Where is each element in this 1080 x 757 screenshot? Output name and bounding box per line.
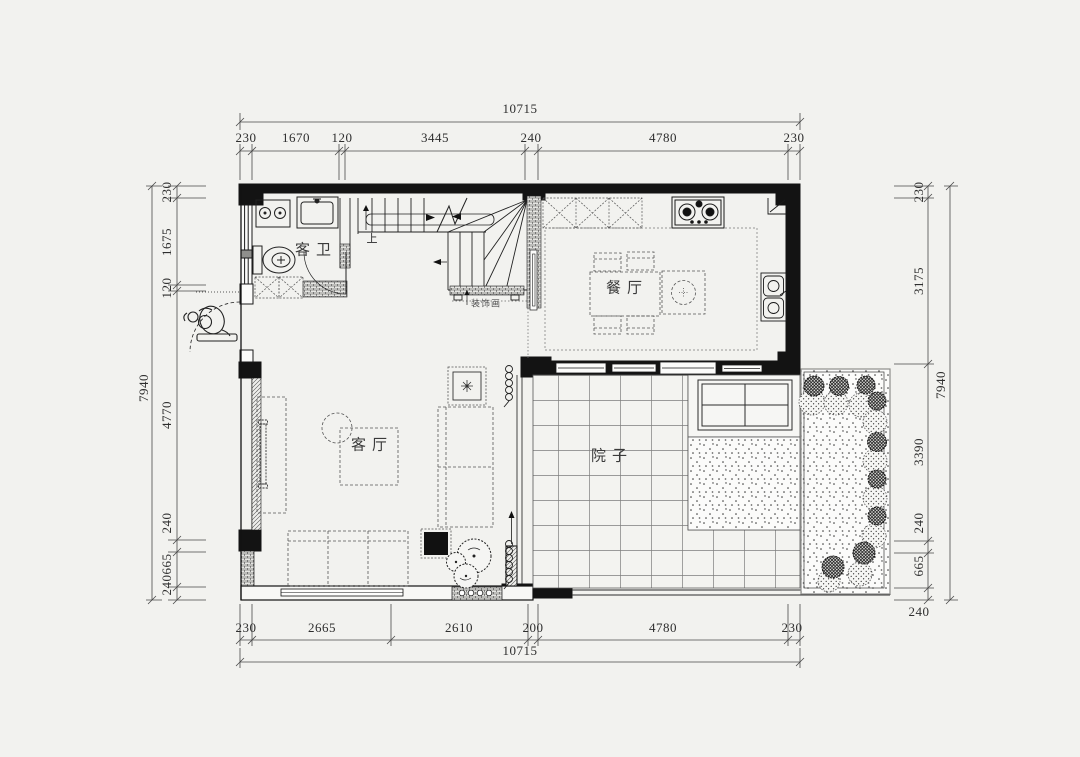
room-label-bathroom: 客卫 [289, 239, 337, 260]
ceiling-dotted-lines [452, 301, 532, 358]
dim-bottom-seg: 230 [236, 620, 257, 636]
dim-bottom-seg: 200 [523, 620, 544, 636]
dim-bottom-seg: 2610 [445, 620, 473, 636]
dim-left-seg: 4770 [159, 401, 175, 429]
decor-cabinet-label: 装饰画 [471, 297, 501, 310]
room-label-courtyard: 院子 [585, 445, 633, 466]
kitchen-sink-icon [761, 273, 786, 321]
dim-top-seg: 240 [521, 130, 542, 146]
entry-door [190, 292, 240, 352]
dim-bottom-seg: 2665 [308, 620, 336, 636]
stove-icon [672, 197, 724, 228]
dim-bottom-seg: 230 [782, 620, 803, 636]
floor-plan-canvas: 客卫 餐厅 客厅 院子 上 装饰画 10715 230 1670 120 344… [0, 0, 1080, 757]
room-label-living: 客厅 [345, 434, 393, 455]
dim-bottom-total: 10715 [503, 643, 538, 659]
dim-left-seg: 1675 [159, 228, 175, 256]
dim-top-seg: 230 [236, 130, 257, 146]
dim-right-seg: 3390 [911, 438, 927, 466]
dim-top-seg: 230 [784, 130, 805, 146]
left-wall [240, 205, 261, 586]
dim-left-seg: 230 [159, 182, 175, 203]
dim-top-seg: 1670 [282, 130, 310, 146]
dim-left-seg: 120 [159, 278, 175, 299]
shoe-cabinet [255, 277, 303, 298]
dim-right-seg: 665 [911, 556, 927, 577]
indoor-trees [447, 539, 492, 588]
sofa [288, 531, 408, 586]
dim-right-seg: 240 [911, 513, 927, 534]
tv-cabinet [257, 397, 286, 513]
dim-top-seg: 4780 [649, 130, 677, 146]
dim-top-seg: 3445 [421, 130, 449, 146]
floor-plan-drawing [0, 0, 1080, 757]
courtyard [504, 366, 890, 596]
dim-top-seg: 120 [332, 130, 353, 146]
room-label-dining: 餐厅 [600, 277, 648, 298]
planter-box [448, 367, 486, 405]
vanity-sink-icon [297, 197, 338, 228]
dim-top-total: 10715 [503, 101, 538, 117]
island-unit [662, 271, 705, 314]
plant-icon [461, 380, 473, 392]
dim-left-seg: 240 [159, 575, 175, 596]
bottom-wall [241, 586, 533, 600]
stairs-up-label: 上 [367, 230, 378, 246]
dim-left-seg: 665 [159, 554, 175, 575]
dim-right-seg: 240 [909, 604, 930, 620]
tall-cabinets [543, 198, 642, 228]
dim-right-seg: 230 [911, 182, 927, 203]
staircase [358, 196, 541, 310]
person-figure [184, 303, 237, 341]
side-stool [421, 529, 451, 558]
dim-left-total: 7940 [136, 374, 152, 402]
living-room [257, 367, 493, 588]
dim-right-total: 7940 [933, 371, 949, 399]
dim-right-seg: 3175 [911, 267, 927, 295]
dining-room [543, 197, 786, 350]
chaise [438, 407, 493, 527]
dim-left-seg: 240 [159, 513, 175, 534]
dim-bottom-seg: 4780 [649, 620, 677, 636]
